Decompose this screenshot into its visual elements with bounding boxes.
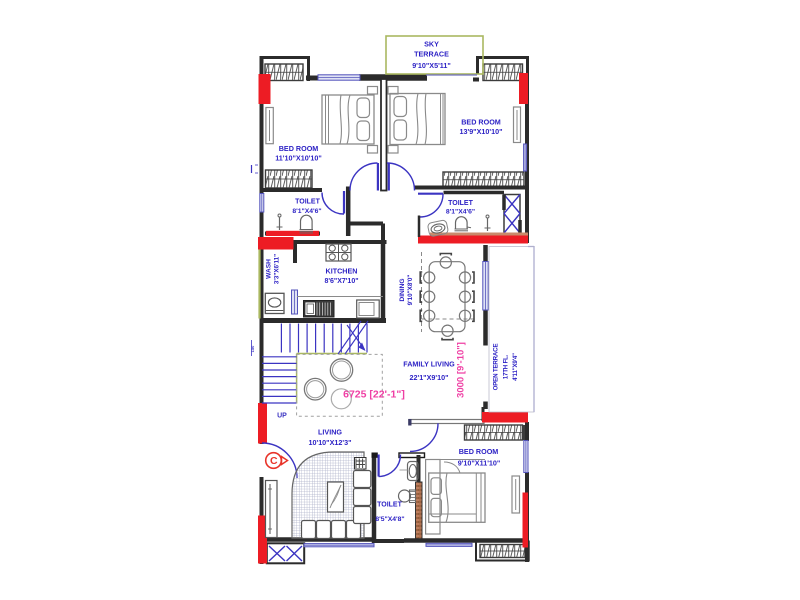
svg-text:8'1"X4'6": 8'1"X4'6" xyxy=(446,209,475,216)
svg-text:150: 150 xyxy=(250,345,255,352)
svg-text:UP: UP xyxy=(277,413,287,420)
svg-text:3000 [9'-10"]: 3000 [9'-10"] xyxy=(456,342,467,398)
svg-text:OPEN TERRACE: OPEN TERRACE xyxy=(493,344,500,391)
svg-text:8'6"X7'10": 8'6"X7'10" xyxy=(324,278,358,285)
svg-text:KITCHEN: KITCHEN xyxy=(326,267,358,276)
svg-text:8'1"X4'6": 8'1"X4'6" xyxy=(292,208,321,215)
svg-text:BED ROOM: BED ROOM xyxy=(461,118,501,127)
svg-text:8'5"X4'8": 8'5"X4'8" xyxy=(375,516,404,523)
svg-text:17TH FL.: 17TH FL. xyxy=(503,354,510,379)
svg-text:13'9"X10'10": 13'9"X10'10" xyxy=(459,127,502,136)
svg-text:BED ROOM: BED ROOM xyxy=(279,144,319,153)
svg-text:WASH: WASH xyxy=(266,259,273,279)
svg-text:TOILET: TOILET xyxy=(448,200,473,207)
svg-text:6725 [22'-1"]: 6725 [22'-1"] xyxy=(343,389,405,401)
svg-text:3'3"X6'11": 3'3"X6'11" xyxy=(274,254,281,284)
svg-text:9'10"X8'0": 9'10"X8'0" xyxy=(407,275,414,306)
svg-text:SKY: SKY xyxy=(424,40,439,49)
svg-text:FAMILY LIVING: FAMILY LIVING xyxy=(403,360,455,369)
svg-text:9'10"X11'10": 9'10"X11'10" xyxy=(458,459,501,468)
svg-text:11'10"X10'10": 11'10"X10'10" xyxy=(275,154,322,163)
svg-text:TOILET: TOILET xyxy=(295,199,320,206)
svg-text:TERRACE: TERRACE xyxy=(414,50,449,59)
svg-text:10'10"X12'3": 10'10"X12'3" xyxy=(308,438,351,447)
svg-text:TOILET: TOILET xyxy=(377,502,402,509)
svg-text:BED ROOM: BED ROOM xyxy=(459,447,499,456)
svg-text:4'11"X9'4": 4'11"X9'4" xyxy=(512,353,519,381)
svg-text:22'1"X9'10": 22'1"X9'10" xyxy=(409,373,448,382)
svg-text:C: C xyxy=(270,455,278,467)
svg-text:9'10"X5'11": 9'10"X5'11" xyxy=(412,61,451,70)
svg-text:LIVING: LIVING xyxy=(318,428,342,437)
svg-text:DINING: DINING xyxy=(399,278,406,301)
